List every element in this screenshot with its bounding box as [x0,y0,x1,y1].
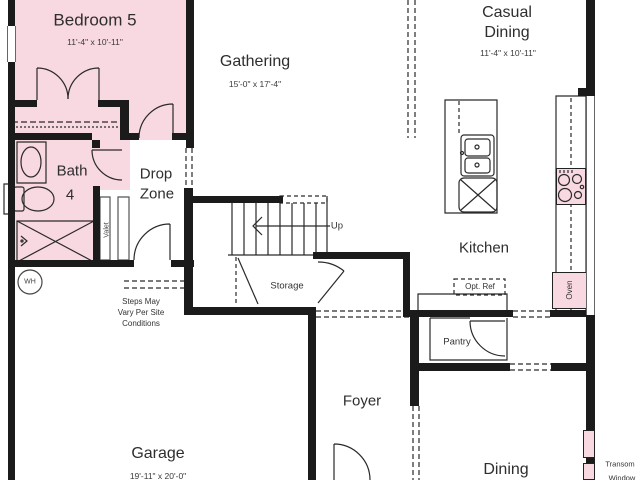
room-label-bath4-2: 4 [66,188,74,203]
wall-right-exterior-top [586,0,595,96]
wall-closet-right-stub [98,100,122,107]
room-label-drop-zone-1: Drop [140,167,173,182]
room-dims-garage: 19'-11" x 20'-0" [130,472,186,480]
wall-closet-side [120,100,129,140]
wall-bedroom-bottom-right [172,133,194,140]
label-transom-1: Transom [605,460,634,468]
wall-kitchen-west [403,259,410,314]
wall-hall-left [184,188,193,315]
room-label-bedroom5: Bedroom 5 [53,12,136,29]
wall-bath-garage [8,260,134,267]
wall-foyer-east [410,310,419,406]
wall-bath-right [93,186,100,262]
wall-bedroom-right [186,0,194,148]
room-dims-casual-dining: 11'-4" x 10'-11" [480,49,536,58]
wall-storage-bottom [184,307,316,315]
wall-garage-right [308,307,316,480]
bedroom-window [7,26,16,62]
kitchen-window-band [586,96,595,315]
floor-plan: Bedroom 5 11'-4" x 10'-11" Gathering 15'… [0,0,640,480]
room-label-casual-dining-2: Dining [484,25,529,41]
room-label-bath4-1: Bath [57,164,88,179]
wall-kitchen-south-left [403,310,513,317]
steps-note-2: Vary Per Site [118,309,165,317]
wall-bedroom-bottom-left [129,133,139,140]
room-label-drop-zone-2: Zone [140,187,174,202]
wall-pantry-south-left [410,363,510,371]
label-up: Up [331,221,343,231]
room-label-storage: Storage [270,281,303,291]
label-valet: Valet [104,222,111,237]
room-dims-bedroom5: 11'-4" x 10'-11" [67,38,123,47]
transom-window-upper [583,430,595,458]
wall-right-exterior-mid [586,315,595,430]
room-label-kitchen: Kitchen [459,241,509,256]
room-label-foyer: Foyer [343,394,381,409]
transom-window-lower [583,463,595,480]
room-dims-gathering: 15'-0" x 17'-4" [229,80,281,89]
wall-counter-cap [578,88,592,96]
room-label-dining: Dining [483,462,528,478]
wall-closet-left-stub [15,100,37,107]
wall-bath-top [8,133,92,140]
label-oven: Oven [566,280,574,299]
room-label-pantry: Pantry [443,337,470,347]
label-opt-ref: Opt. Ref [465,283,495,291]
room-label-gathering: Gathering [220,54,290,70]
steps-note-1: Steps May [122,298,160,306]
wall-stair-bottom [313,252,410,259]
wall-bath-top-stub [92,140,100,148]
wall-stair-top [193,196,283,203]
label-water-heater: WH [24,279,36,286]
room-label-casual-dining-1: Casual [482,5,532,21]
label-transom-2: Window [609,474,636,480]
wall-left-exterior [8,0,15,480]
room-label-garage: Garage [131,446,184,462]
steps-note-3: Conditions [122,320,160,328]
